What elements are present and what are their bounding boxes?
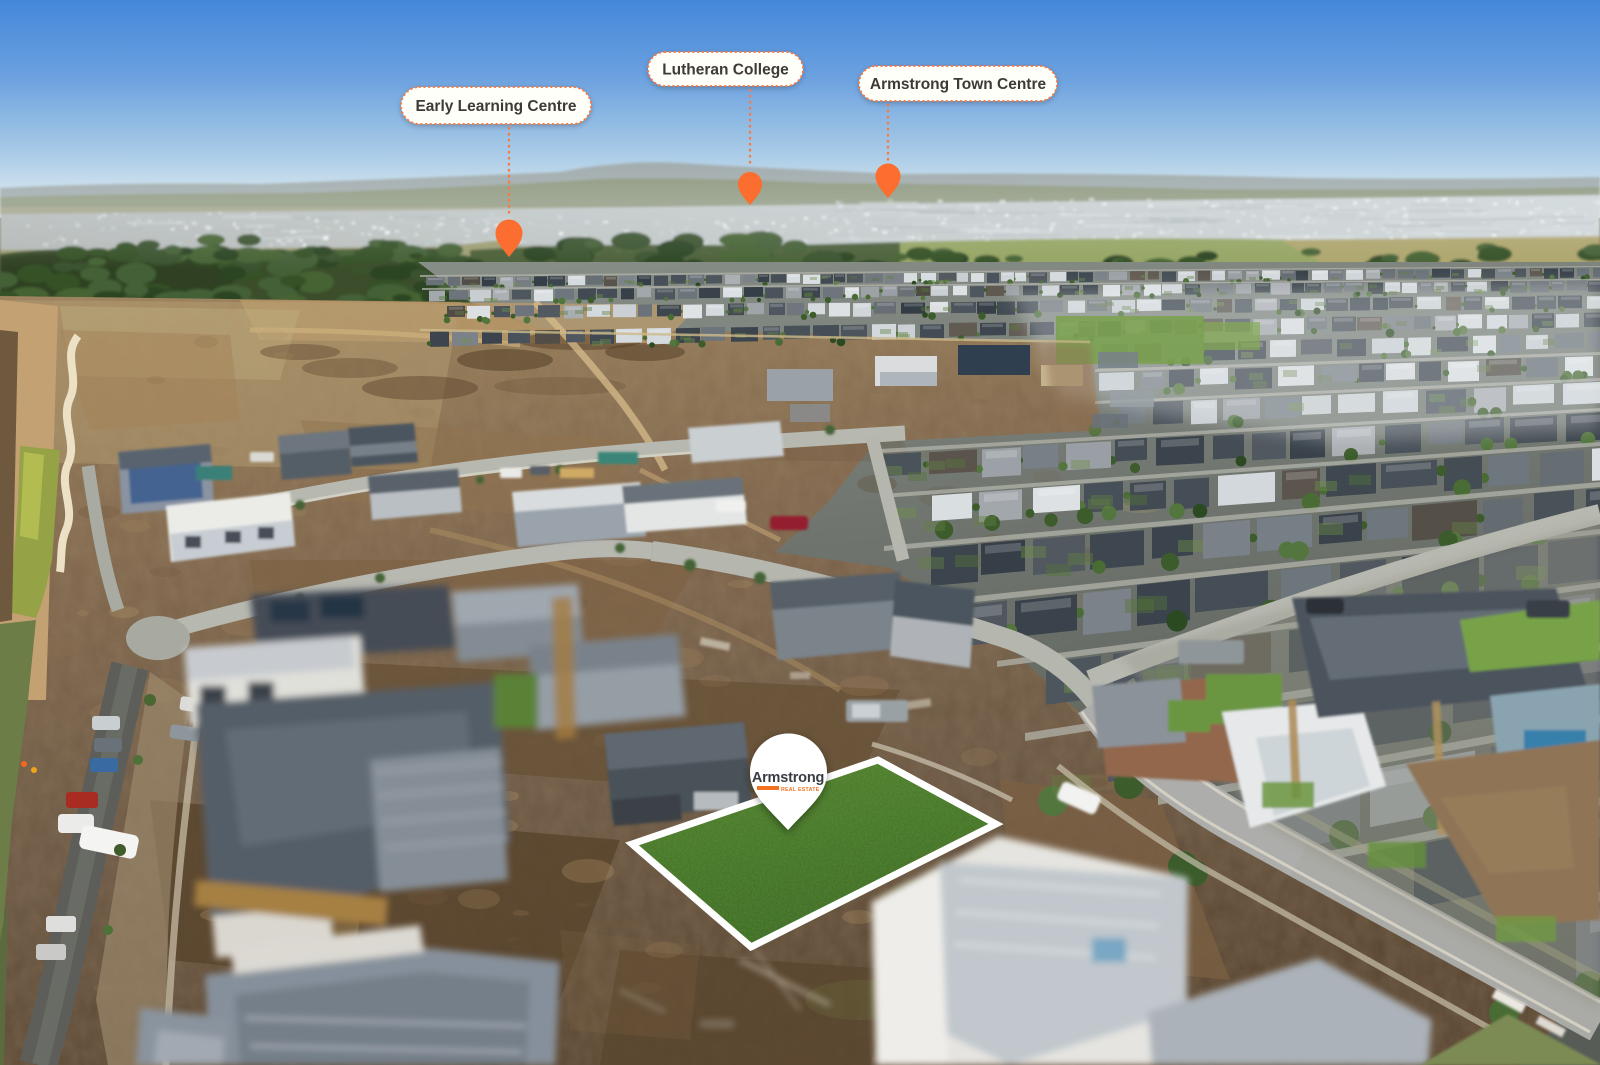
svg-text:Early Learning Centre: Early Learning Centre (415, 98, 576, 115)
svg-text:Armstrong Town Centre: Armstrong Town Centre (870, 76, 1047, 93)
svg-text:Armstrong: Armstrong (752, 770, 824, 786)
svg-text:REAL ESTATE: REAL ESTATE (781, 787, 820, 793)
svg-text:Lutheran College: Lutheran College (662, 61, 789, 78)
